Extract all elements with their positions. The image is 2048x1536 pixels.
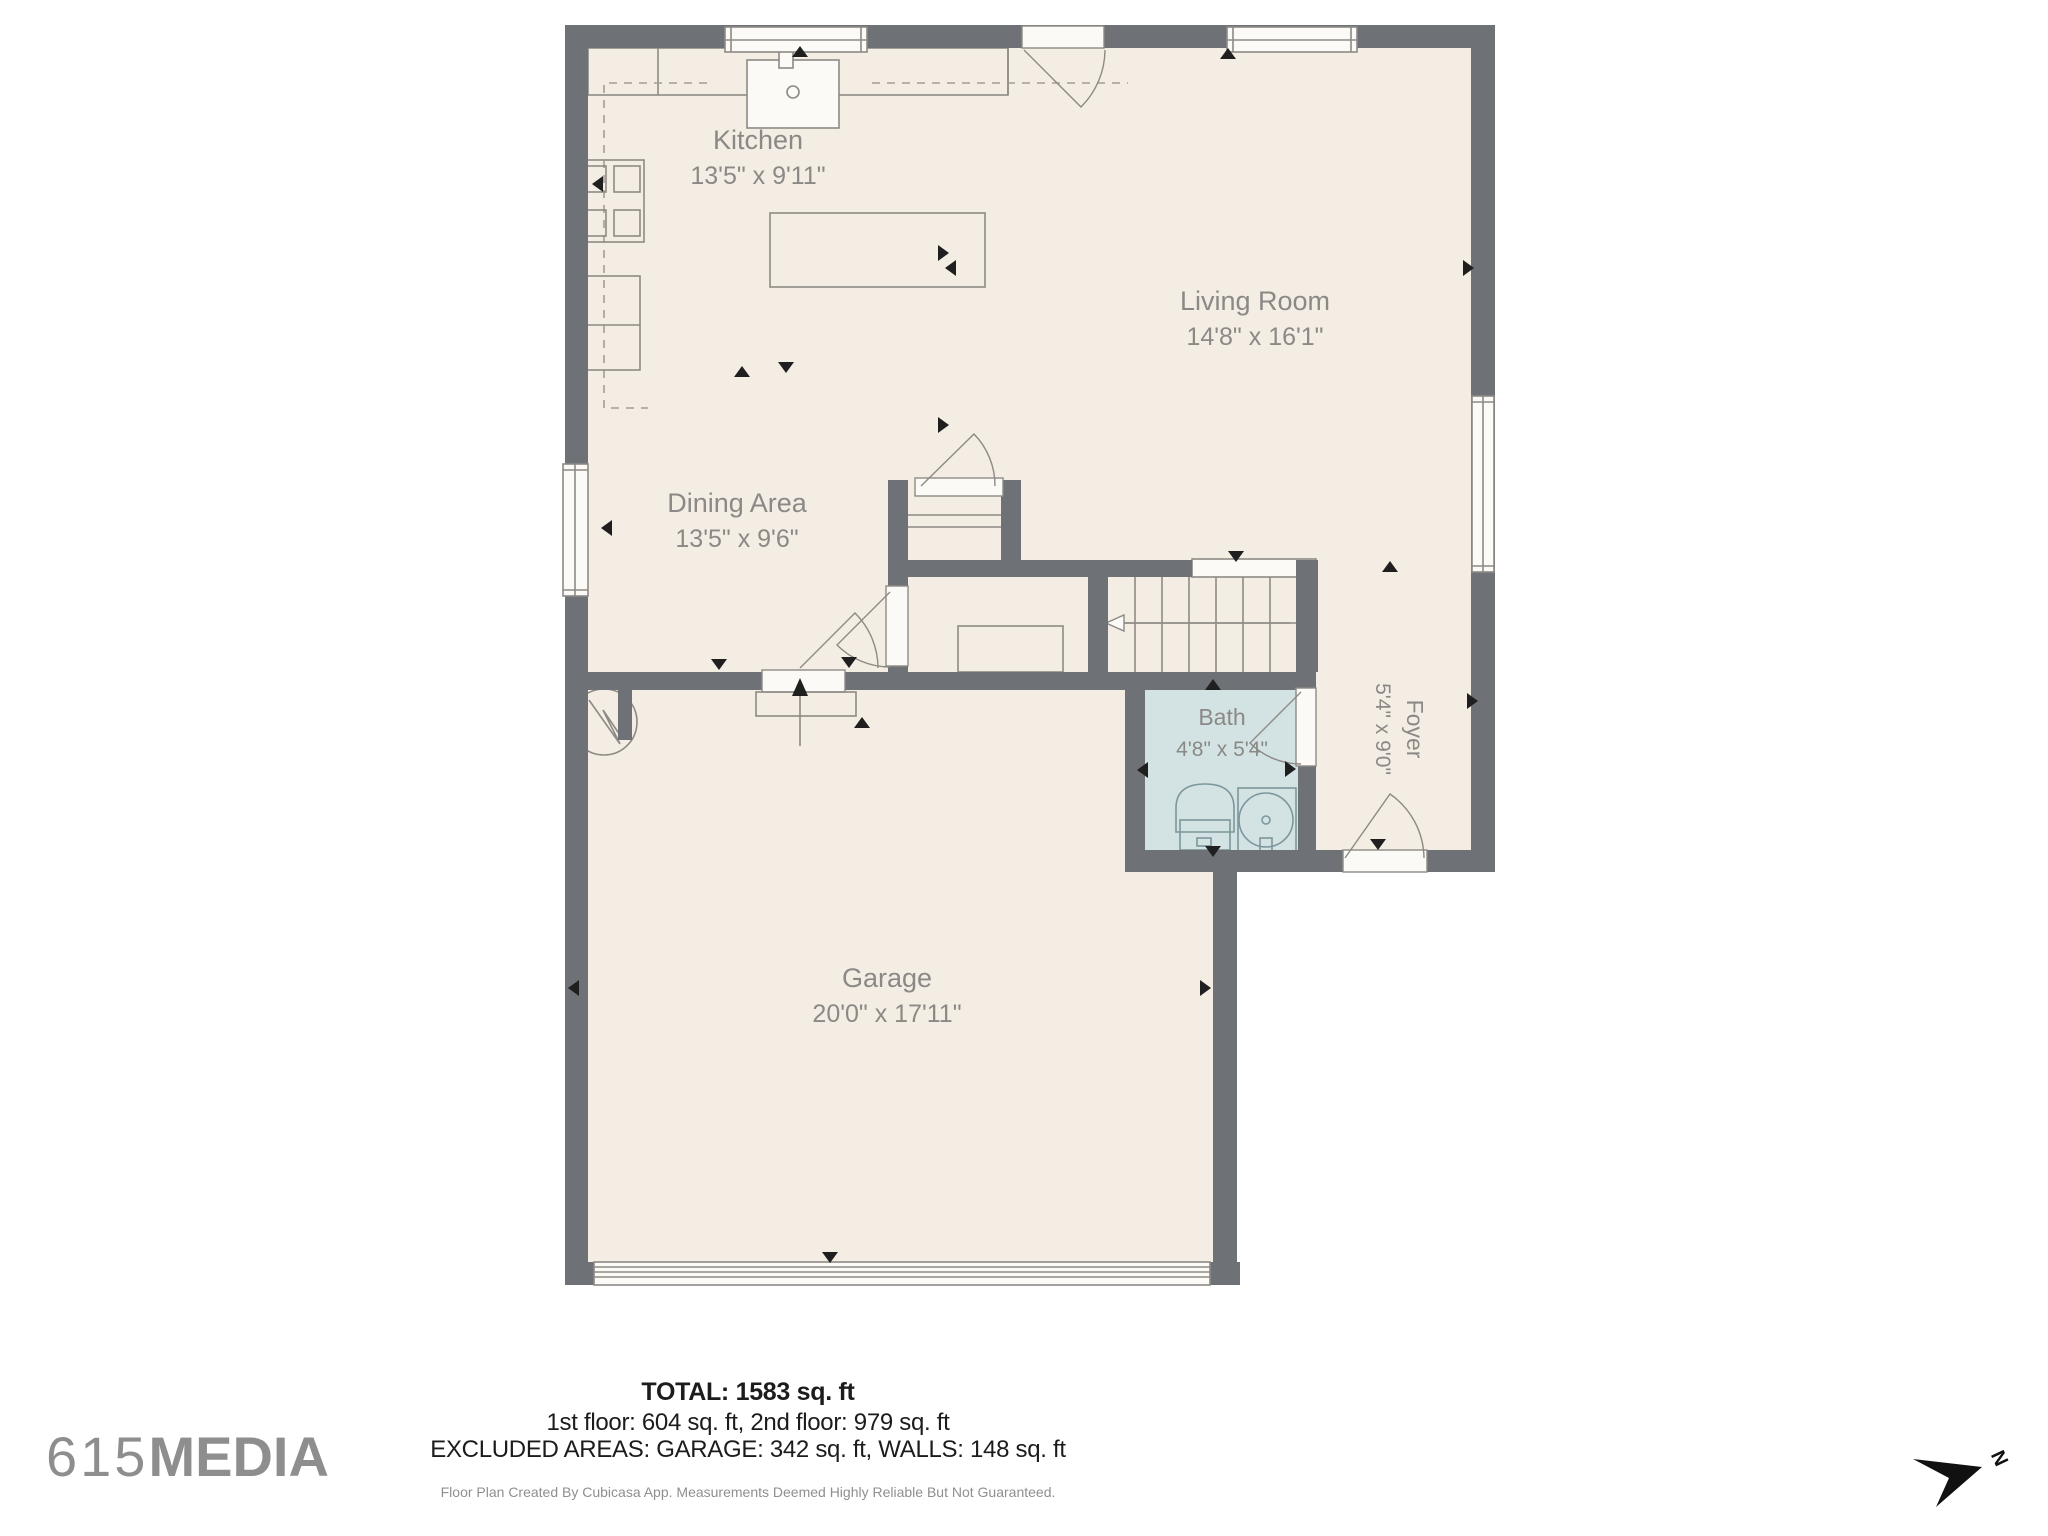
room-dimensions: 14'8" x 16'1" <box>1180 320 1330 355</box>
disclaimer-text: Floor Plan Created By Cubicasa App. Meas… <box>441 1484 1056 1500</box>
room-dimensions: 4'8" x 5'4" <box>1176 734 1268 765</box>
room-label-bath: Bath 4'8" x 5'4" <box>1176 701 1268 765</box>
room-dimensions: 13'5" x 9'6" <box>667 522 807 557</box>
room-label-foyer: Foyer 5'4" x 9'0" <box>1367 683 1431 775</box>
total-area-text: TOTAL: 1583 sq. ft <box>641 1378 854 1407</box>
wall-stair-top <box>888 560 1192 577</box>
logo-prefix: 615 <box>46 1425 148 1488</box>
wall-foyer-bottom <box>1427 850 1495 872</box>
room-dimensions: 20'0" x 17'11" <box>812 997 961 1032</box>
room-name: Bath <box>1176 701 1268 734</box>
wall-stub-water-heater <box>618 690 632 740</box>
excluded-areas-text: EXCLUDED AREAS: GARAGE: 342 sq. ft, WALL… <box>430 1436 1065 1464</box>
north-arrow-icon <box>1913 1459 1982 1507</box>
floor-areas-text: 1st floor: 604 sq. ft, 2nd floor: 979 sq… <box>546 1409 949 1437</box>
window-dining-left <box>563 464 588 596</box>
room-label-living-room: Living Room 14'8" x 16'1" <box>1180 283 1330 355</box>
room-name: Dining Area <box>667 485 807 522</box>
floor-fills <box>565 25 1495 1285</box>
room-label-dining-area: Dining Area 13'5" x 9'6" <box>667 485 807 557</box>
wall-garage-right <box>1213 860 1237 1285</box>
room-dimensions: 5'4" x 9'0" <box>1367 683 1398 775</box>
room-name: Garage <box>812 960 961 997</box>
company-logo: 615MEDIA <box>46 1427 329 1487</box>
room-name: Foyer <box>1398 683 1431 775</box>
wall-stair-right <box>1296 560 1318 672</box>
window-living-right <box>1472 396 1494 572</box>
floor-plan-drawing: N <box>0 0 2048 1536</box>
north-label: N <box>1986 1447 2012 1469</box>
wall-garage-top <box>565 672 1316 690</box>
window-kitchen <box>725 27 867 52</box>
garage-overhead-door <box>594 1262 1210 1285</box>
room-label-garage: Garage 20'0" x 17'11" <box>812 960 961 1032</box>
north-compass: N <box>1913 1447 2012 1507</box>
wall-closet-right <box>1001 480 1021 577</box>
room-label-kitchen: Kitchen 13'5" x 9'11" <box>690 122 825 194</box>
room-dimensions: 13'5" x 9'11" <box>690 159 825 194</box>
window-living-top <box>1227 27 1357 52</box>
logo-suffix: MEDIA <box>148 1425 328 1488</box>
wall-stair-left <box>1088 560 1108 690</box>
kitchen-sink <box>747 60 839 128</box>
room-name: Living Room <box>1180 283 1330 320</box>
room-name: Kitchen <box>690 122 825 159</box>
